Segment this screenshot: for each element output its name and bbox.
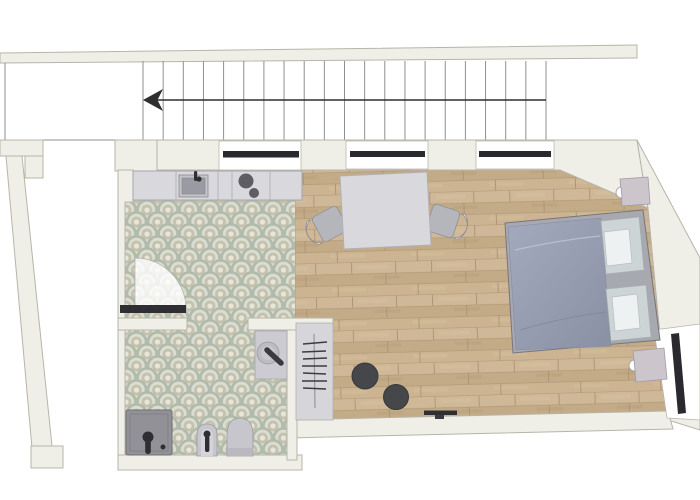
outer-left-wall — [0, 140, 63, 468]
left-wall-stub — [25, 156, 43, 178]
bed-duvet — [508, 218, 611, 350]
nightstand-body — [620, 177, 650, 206]
burner-small — [249, 188, 259, 198]
window-top-3[interactable] — [476, 141, 554, 169]
window-glass — [223, 151, 299, 158]
kitchen-counter[interactable] — [133, 171, 302, 200]
kitchen-sink[interactable] — [179, 171, 208, 197]
faucet-base — [196, 176, 201, 181]
pouf-1[interactable] — [352, 363, 378, 389]
stair-treads — [143, 61, 546, 141]
staircase — [0, 45, 637, 141]
tv-stand — [435, 415, 444, 419]
bathroom-right-wall — [287, 318, 297, 460]
window-glass — [479, 151, 551, 157]
bidet-faucet-stem — [205, 436, 209, 452]
hanger-icon — [303, 388, 326, 389]
window-glass — [350, 151, 425, 157]
shower[interactable] — [126, 410, 172, 455]
left-wall-foot — [31, 446, 63, 468]
hanger-icon — [303, 358, 327, 359]
bidet[interactable] — [197, 424, 217, 456]
shower-fixture-stem — [145, 437, 151, 454]
dining-table[interactable] — [340, 172, 431, 249]
toilet-base — [228, 448, 252, 456]
double-bed[interactable] — [505, 210, 660, 353]
top-left-pier — [115, 140, 157, 171]
shower-drain — [161, 445, 166, 450]
window-top-1[interactable] — [219, 141, 301, 170]
pillow-small-bottom — [612, 294, 640, 331]
hanger-icon — [303, 373, 326, 374]
nightstand-body — [633, 348, 667, 382]
bathroom-bottom-wall — [118, 455, 302, 470]
bathroom-door[interactable] — [120, 305, 186, 313]
washbasin[interactable] — [255, 331, 287, 379]
pouf-2[interactable] — [384, 385, 409, 410]
left-wall-diagonal — [6, 156, 52, 448]
clothes-rack[interactable] — [296, 323, 333, 420]
stair-landing-wall — [0, 45, 637, 63]
bathroom-mid-wall-left — [118, 318, 187, 330]
tv-screen — [424, 411, 457, 416]
hanger-icon — [302, 351, 326, 352]
floor-plan-canvas — [0, 0, 700, 500]
window-top-2[interactable] — [346, 141, 428, 169]
burner-large — [239, 174, 254, 189]
pillow-small-top — [604, 229, 632, 266]
toilet[interactable] — [227, 418, 253, 456]
left-wall-top — [0, 140, 43, 156]
sink-basin — [182, 178, 205, 194]
